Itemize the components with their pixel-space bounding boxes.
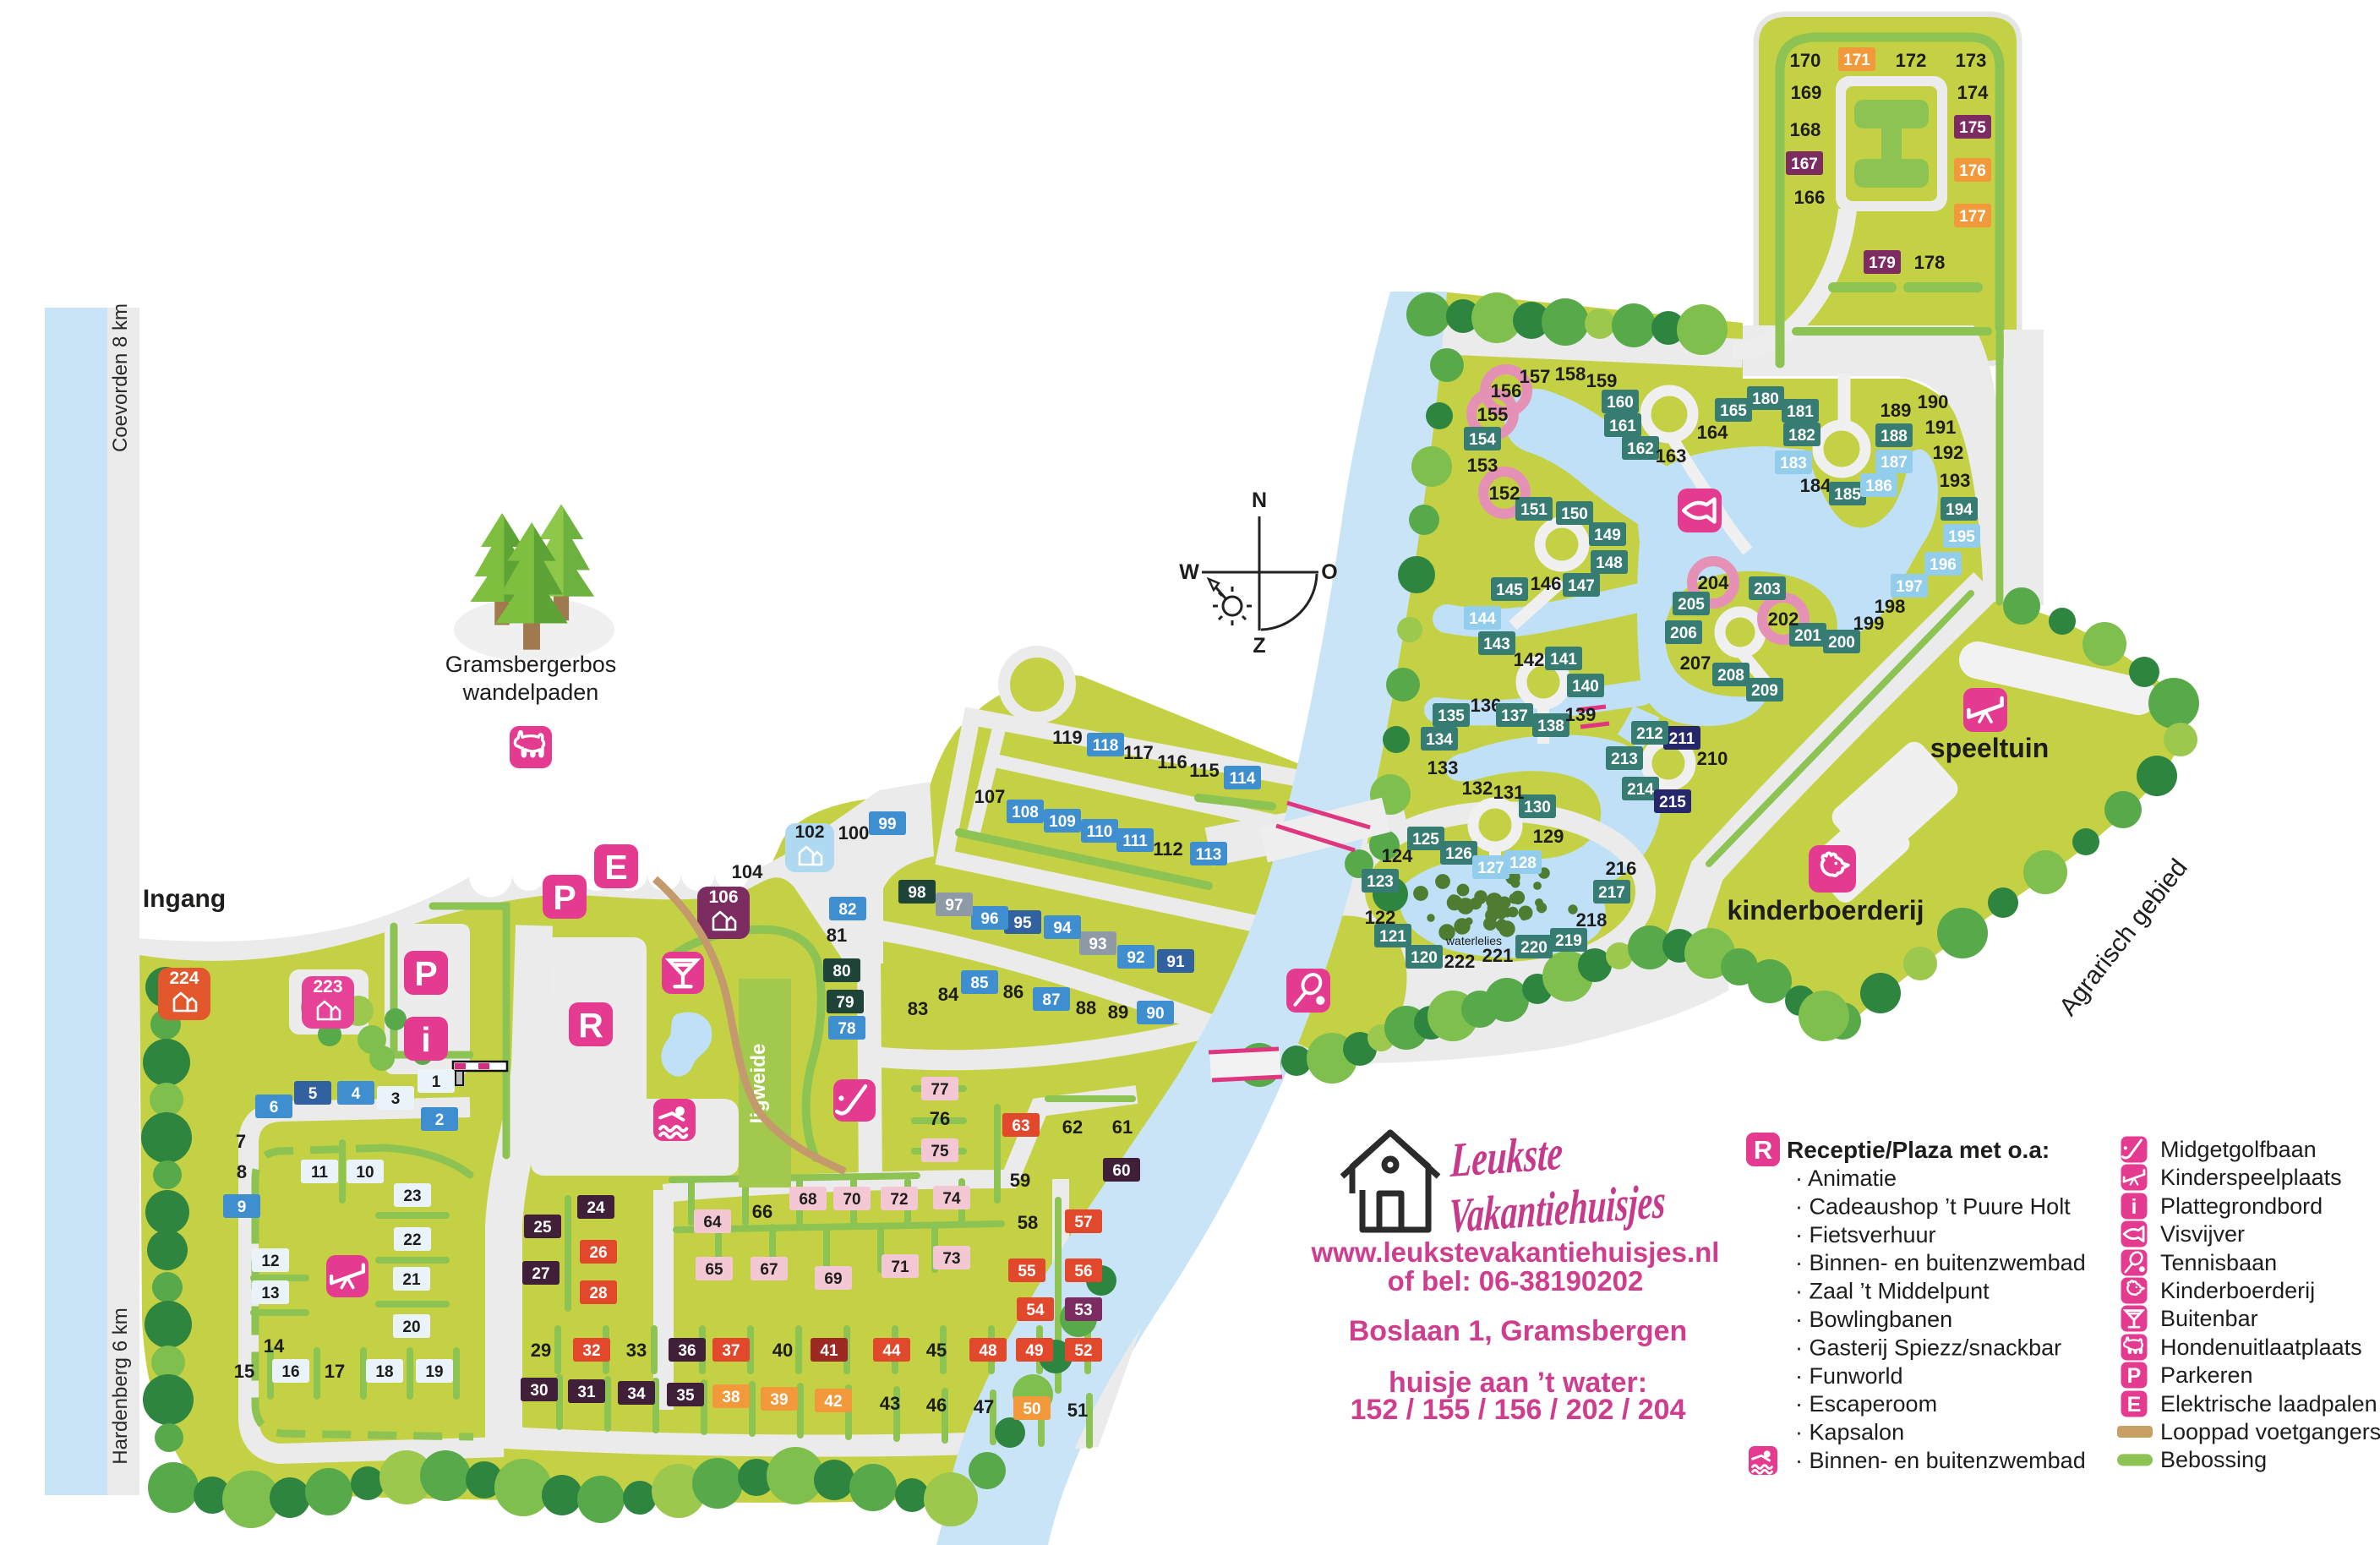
svg-text:139: 139 bbox=[1565, 704, 1597, 725]
svg-text:of bel: 06-38190202: of bel: 06-38190202 bbox=[1388, 1265, 1644, 1297]
svg-text:61: 61 bbox=[1112, 1116, 1133, 1138]
svg-text:146: 146 bbox=[1531, 573, 1562, 594]
svg-text:33: 33 bbox=[626, 1340, 647, 1361]
svg-text:150: 150 bbox=[1561, 505, 1588, 523]
svg-text:85: 85 bbox=[970, 974, 989, 992]
svg-text:116: 116 bbox=[1157, 751, 1187, 772]
svg-text:202: 202 bbox=[1768, 609, 1799, 630]
svg-text:41: 41 bbox=[820, 1342, 838, 1360]
svg-text:169: 169 bbox=[1791, 82, 1822, 103]
svg-text:123: 123 bbox=[1367, 873, 1394, 891]
svg-text:100: 100 bbox=[838, 822, 870, 843]
svg-text:207: 207 bbox=[1680, 652, 1711, 674]
svg-text:152 / 155 / 156 / 202 / 204: 152 / 155 / 156 / 202 / 204 bbox=[1351, 1394, 1686, 1426]
svg-text:74: 74 bbox=[942, 1190, 961, 1208]
svg-text:53: 53 bbox=[1074, 1302, 1092, 1319]
svg-text:205: 205 bbox=[1678, 596, 1705, 614]
svg-text:Kinderspeelplaats: Kinderspeelplaats bbox=[2160, 1165, 2342, 1190]
svg-text:· Zaal ’t Middelpunt: · Zaal ’t Middelpunt bbox=[1795, 1279, 1990, 1304]
svg-text:117: 117 bbox=[1123, 742, 1154, 763]
svg-text:Looppad voetgangers: Looppad voetgangers bbox=[2160, 1419, 2380, 1444]
svg-text:216: 216 bbox=[1606, 858, 1637, 879]
svg-text:215: 215 bbox=[1659, 794, 1686, 811]
svg-text:209: 209 bbox=[1751, 682, 1778, 700]
svg-text:191: 191 bbox=[1925, 417, 1957, 438]
svg-text:8: 8 bbox=[237, 1161, 247, 1182]
svg-text:214: 214 bbox=[1627, 781, 1654, 799]
svg-text:63: 63 bbox=[1012, 1117, 1029, 1135]
svg-text:· Bowlingbanen: · Bowlingbanen bbox=[1795, 1307, 1952, 1332]
svg-text:6: 6 bbox=[270, 1099, 279, 1116]
svg-text:4: 4 bbox=[352, 1085, 361, 1103]
svg-text:185: 185 bbox=[1834, 486, 1861, 504]
svg-text:177: 177 bbox=[1959, 208, 1986, 226]
svg-text:79: 79 bbox=[836, 994, 854, 1012]
svg-text:137: 137 bbox=[1501, 707, 1528, 725]
svg-text:66: 66 bbox=[752, 1201, 772, 1222]
svg-text:76: 76 bbox=[930, 1108, 950, 1129]
svg-text:95: 95 bbox=[1013, 914, 1032, 932]
svg-text:i: i bbox=[2132, 1195, 2137, 1219]
svg-text:83: 83 bbox=[908, 998, 928, 1019]
svg-text:speeltuin: speeltuin bbox=[1930, 733, 2049, 763]
svg-text:11: 11 bbox=[311, 1164, 329, 1182]
svg-text:47: 47 bbox=[974, 1396, 994, 1417]
svg-text:28: 28 bbox=[589, 1285, 607, 1302]
svg-text:· Animatie: · Animatie bbox=[1795, 1166, 1897, 1191]
svg-text:161: 161 bbox=[1609, 418, 1636, 435]
svg-text:119: 119 bbox=[1052, 727, 1083, 748]
svg-text:126: 126 bbox=[1445, 845, 1472, 863]
svg-text:57: 57 bbox=[1074, 1214, 1092, 1231]
svg-text:222: 222 bbox=[1444, 951, 1476, 972]
svg-text:67: 67 bbox=[760, 1261, 778, 1279]
svg-text:217: 217 bbox=[1598, 884, 1625, 902]
svg-text:18: 18 bbox=[375, 1363, 393, 1381]
svg-text:152: 152 bbox=[1489, 483, 1520, 504]
svg-text:19: 19 bbox=[425, 1363, 443, 1381]
svg-text:112: 112 bbox=[1153, 838, 1183, 860]
svg-text:· Gasterij Spiezz/snackbar: · Gasterij Spiezz/snackbar bbox=[1795, 1335, 2061, 1360]
svg-text:200: 200 bbox=[1828, 634, 1855, 652]
svg-text:224: 224 bbox=[169, 969, 199, 988]
svg-text:87: 87 bbox=[1042, 991, 1060, 1009]
svg-text:Midgetgolfbaan: Midgetgolfbaan bbox=[2160, 1137, 2317, 1162]
svg-text:45: 45 bbox=[926, 1340, 947, 1361]
svg-text:62: 62 bbox=[1062, 1116, 1083, 1138]
svg-text:81: 81 bbox=[827, 925, 847, 946]
svg-text:96: 96 bbox=[980, 910, 998, 928]
svg-text:98: 98 bbox=[908, 884, 925, 902]
svg-text:113: 113 bbox=[1196, 846, 1222, 864]
svg-text:17: 17 bbox=[325, 1361, 345, 1382]
svg-text:220: 220 bbox=[1520, 939, 1548, 957]
svg-text:77: 77 bbox=[931, 1081, 948, 1099]
svg-text:68: 68 bbox=[799, 1191, 816, 1209]
svg-text:153: 153 bbox=[1467, 455, 1498, 476]
svg-text:37: 37 bbox=[722, 1342, 740, 1360]
svg-text:155: 155 bbox=[1477, 404, 1509, 425]
svg-text:3: 3 bbox=[391, 1090, 401, 1108]
svg-text:110: 110 bbox=[1087, 823, 1113, 841]
svg-text:9: 9 bbox=[237, 1198, 247, 1216]
svg-text:172: 172 bbox=[1896, 50, 1927, 71]
svg-text:189: 189 bbox=[1881, 400, 1912, 421]
svg-text:192: 192 bbox=[1933, 442, 1964, 463]
svg-text:163: 163 bbox=[1656, 445, 1687, 467]
svg-text:213: 213 bbox=[1611, 751, 1638, 768]
svg-text:23: 23 bbox=[403, 1187, 421, 1205]
svg-text:· Funworld: · Funworld bbox=[1795, 1363, 1903, 1389]
svg-text:Ingang: Ingang bbox=[143, 885, 226, 913]
svg-text:35: 35 bbox=[676, 1387, 695, 1405]
svg-text:13: 13 bbox=[261, 1285, 279, 1302]
svg-text:144: 144 bbox=[1469, 610, 1496, 628]
svg-text:22: 22 bbox=[403, 1231, 421, 1249]
svg-text:52: 52 bbox=[1074, 1342, 1092, 1360]
svg-text:196: 196 bbox=[1930, 556, 1957, 574]
svg-text:· Escaperoom: · Escaperoom bbox=[1795, 1391, 1937, 1417]
svg-text:P: P bbox=[414, 954, 437, 993]
svg-text:111: 111 bbox=[1122, 833, 1148, 850]
svg-text:121: 121 bbox=[1379, 928, 1406, 946]
svg-text:Receptie/Plaza met o.a:: Receptie/Plaza met o.a: bbox=[1787, 1137, 2050, 1163]
svg-text:Gramsbergerbos: Gramsbergerbos bbox=[445, 652, 617, 677]
svg-text:93: 93 bbox=[1089, 936, 1106, 953]
svg-text:39: 39 bbox=[770, 1391, 788, 1409]
svg-text:R: R bbox=[1754, 1135, 1772, 1165]
svg-text:38: 38 bbox=[722, 1389, 740, 1406]
svg-text:223: 223 bbox=[313, 977, 342, 996]
svg-text:88: 88 bbox=[1076, 997, 1096, 1018]
svg-text:· Fietsverhuur: · Fietsverhuur bbox=[1795, 1222, 1936, 1247]
svg-text:· Binnen- en buitenzwembad: · Binnen- en buitenzwembad bbox=[1795, 1250, 2086, 1275]
svg-text:20: 20 bbox=[402, 1318, 420, 1336]
svg-text:31: 31 bbox=[577, 1384, 596, 1401]
svg-text:Parkeren: Parkeren bbox=[2160, 1362, 2253, 1388]
svg-text:i: i bbox=[421, 1020, 430, 1059]
svg-text:179: 179 bbox=[1869, 254, 1896, 272]
svg-text:193: 193 bbox=[1940, 470, 1971, 491]
svg-text:118: 118 bbox=[1093, 737, 1119, 755]
svg-text:203: 203 bbox=[1754, 581, 1781, 598]
svg-text:158: 158 bbox=[1555, 363, 1586, 385]
svg-text:48: 48 bbox=[979, 1342, 996, 1360]
svg-text:109: 109 bbox=[1049, 813, 1076, 831]
svg-text:218: 218 bbox=[1576, 909, 1608, 931]
svg-text:Bebossing: Bebossing bbox=[2160, 1447, 2267, 1472]
svg-text:90: 90 bbox=[1146, 1005, 1164, 1023]
svg-text:140: 140 bbox=[1572, 678, 1599, 696]
svg-text:Plattegrondbord: Plattegrondbord bbox=[2160, 1193, 2323, 1219]
svg-text:32: 32 bbox=[582, 1342, 600, 1360]
svg-text:102: 102 bbox=[794, 822, 824, 842]
svg-text:14: 14 bbox=[264, 1335, 285, 1357]
svg-text:16: 16 bbox=[281, 1363, 299, 1381]
svg-text:27: 27 bbox=[532, 1265, 549, 1283]
svg-text:181: 181 bbox=[1787, 403, 1814, 421]
svg-text:1: 1 bbox=[432, 1073, 441, 1091]
svg-text:64: 64 bbox=[703, 1214, 722, 1231]
svg-text:Z: Z bbox=[1253, 634, 1265, 658]
svg-text:69: 69 bbox=[824, 1270, 842, 1288]
svg-text:www.leukstevakantiehuisjes.nl: www.leukstevakantiehuisjes.nl bbox=[1311, 1237, 1720, 1268]
svg-text:Elektrische laadpalen: Elektrische laadpalen bbox=[2160, 1391, 2377, 1417]
svg-text:80: 80 bbox=[832, 963, 850, 980]
svg-text:210: 210 bbox=[1697, 748, 1728, 769]
svg-text:70: 70 bbox=[843, 1191, 860, 1209]
svg-text:Kinderboerderij: Kinderboerderij bbox=[2160, 1278, 2315, 1303]
svg-text:130: 130 bbox=[1524, 799, 1551, 816]
svg-text:120: 120 bbox=[1411, 949, 1438, 967]
svg-text:91: 91 bbox=[1166, 953, 1185, 971]
svg-text:219: 219 bbox=[1555, 932, 1582, 950]
svg-text:212: 212 bbox=[1636, 725, 1663, 743]
svg-text:Boslaan 1, Gramsbergen: Boslaan 1, Gramsbergen bbox=[1349, 1315, 1688, 1347]
svg-text:178: 178 bbox=[1914, 252, 1946, 273]
svg-text:195: 195 bbox=[1948, 528, 1975, 546]
svg-text:134: 134 bbox=[1426, 731, 1453, 749]
svg-text:204: 204 bbox=[1698, 572, 1729, 593]
svg-text:174: 174 bbox=[1957, 82, 1989, 103]
svg-text:89: 89 bbox=[1108, 1002, 1128, 1023]
svg-text:15: 15 bbox=[234, 1361, 254, 1382]
svg-text:142: 142 bbox=[1514, 649, 1545, 670]
svg-text:183: 183 bbox=[1780, 455, 1807, 472]
svg-text:O: O bbox=[1321, 560, 1337, 584]
svg-text:waterlelies: waterlelies bbox=[1445, 934, 1502, 947]
svg-text:Agrarisch gebied: Agrarisch gebied bbox=[2054, 854, 2193, 1021]
svg-text:115: 115 bbox=[1189, 760, 1220, 781]
svg-text:186: 186 bbox=[1865, 478, 1892, 495]
svg-text:Visvijver: Visvijver bbox=[2160, 1221, 2245, 1247]
svg-text:107: 107 bbox=[974, 786, 1006, 807]
svg-text:135: 135 bbox=[1438, 707, 1465, 725]
svg-text:· Kapsalon: · Kapsalon bbox=[1795, 1420, 1904, 1445]
svg-text:12: 12 bbox=[261, 1253, 279, 1270]
svg-text:55: 55 bbox=[1018, 1263, 1036, 1280]
svg-text:132: 132 bbox=[1462, 778, 1493, 799]
svg-text:59: 59 bbox=[1010, 1170, 1030, 1191]
svg-text:94: 94 bbox=[1053, 920, 1072, 937]
svg-text:149: 149 bbox=[1594, 527, 1621, 544]
svg-text:173: 173 bbox=[1956, 50, 1987, 71]
svg-text:162: 162 bbox=[1627, 440, 1654, 458]
svg-text:· Binnen- en buitenzwembad: · Binnen- en buitenzwembad bbox=[1795, 1448, 2086, 1473]
svg-text:159: 159 bbox=[1586, 370, 1618, 391]
svg-text:201: 201 bbox=[1794, 627, 1821, 645]
svg-text:133: 133 bbox=[1427, 757, 1459, 778]
svg-text:138: 138 bbox=[1537, 718, 1564, 735]
svg-text:25: 25 bbox=[533, 1219, 552, 1237]
svg-text:Hondenuitlaatplaats: Hondenuitlaatplaats bbox=[2160, 1335, 2362, 1360]
svg-text:206: 206 bbox=[1670, 625, 1697, 642]
svg-text:36: 36 bbox=[678, 1342, 696, 1360]
svg-text:78: 78 bbox=[838, 1020, 855, 1038]
svg-text:26: 26 bbox=[589, 1244, 607, 1262]
svg-text:W: W bbox=[1179, 560, 1199, 584]
svg-text:145: 145 bbox=[1496, 581, 1523, 599]
svg-text:151: 151 bbox=[1520, 501, 1548, 519]
svg-text:129: 129 bbox=[1533, 826, 1564, 847]
svg-text:N: N bbox=[1252, 489, 1267, 512]
svg-text:50: 50 bbox=[1023, 1400, 1040, 1418]
svg-text:R: R bbox=[578, 1006, 603, 1045]
svg-text:60: 60 bbox=[1112, 1162, 1130, 1180]
svg-text:84: 84 bbox=[938, 984, 959, 1005]
svg-text:190: 190 bbox=[1918, 391, 1949, 412]
svg-text:143: 143 bbox=[1483, 636, 1510, 653]
svg-text:208: 208 bbox=[1717, 667, 1744, 685]
svg-text:104: 104 bbox=[732, 861, 763, 882]
svg-text:wandelpaden: wandelpaden bbox=[462, 680, 599, 705]
svg-text:128: 128 bbox=[1509, 854, 1537, 872]
svg-text:73: 73 bbox=[942, 1250, 960, 1268]
svg-text:160: 160 bbox=[1607, 394, 1634, 412]
svg-text:99: 99 bbox=[878, 816, 896, 833]
svg-text:71: 71 bbox=[891, 1258, 909, 1276]
svg-text:122: 122 bbox=[1365, 907, 1396, 928]
svg-text:P: P bbox=[2127, 1364, 2142, 1388]
svg-text:86: 86 bbox=[1003, 981, 1024, 1002]
svg-text:165: 165 bbox=[1720, 402, 1747, 420]
svg-text:188: 188 bbox=[1881, 428, 1908, 445]
svg-text:197: 197 bbox=[1896, 578, 1923, 596]
svg-text:180: 180 bbox=[1752, 390, 1779, 408]
svg-text:194: 194 bbox=[1946, 501, 1973, 519]
svg-text:82: 82 bbox=[838, 901, 856, 919]
svg-text:187: 187 bbox=[1881, 454, 1908, 472]
svg-text:164: 164 bbox=[1697, 422, 1728, 443]
svg-text:43: 43 bbox=[880, 1393, 900, 1414]
svg-text:58: 58 bbox=[1018, 1212, 1038, 1233]
svg-text:114: 114 bbox=[1230, 770, 1256, 788]
svg-text:75: 75 bbox=[931, 1143, 949, 1160]
svg-text:127: 127 bbox=[1477, 860, 1504, 877]
svg-text:157: 157 bbox=[1520, 366, 1551, 387]
svg-text:141: 141 bbox=[1550, 651, 1577, 669]
svg-text:148: 148 bbox=[1596, 554, 1623, 572]
svg-text:Hardenberg 6 km: Hardenberg 6 km bbox=[109, 1308, 132, 1464]
svg-text:21: 21 bbox=[402, 1271, 421, 1289]
svg-text:131: 131 bbox=[1493, 782, 1525, 803]
svg-text:156: 156 bbox=[1491, 380, 1522, 401]
svg-text:167: 167 bbox=[1791, 156, 1818, 173]
svg-text:106: 106 bbox=[708, 887, 738, 907]
svg-text:E: E bbox=[2127, 1393, 2142, 1417]
svg-text:42: 42 bbox=[824, 1393, 842, 1411]
svg-text:176: 176 bbox=[1959, 162, 1986, 180]
svg-text:56: 56 bbox=[1074, 1263, 1092, 1280]
svg-text:kinderboerderij: kinderboerderij bbox=[1728, 895, 1924, 925]
svg-text:Tennisbaan: Tennisbaan bbox=[2160, 1250, 2277, 1275]
svg-text:92: 92 bbox=[1127, 949, 1144, 967]
svg-text:166: 166 bbox=[1794, 187, 1826, 208]
svg-text:108: 108 bbox=[1012, 804, 1039, 822]
svg-text:168: 168 bbox=[1790, 119, 1821, 140]
svg-text:182: 182 bbox=[1788, 427, 1815, 445]
svg-text:125: 125 bbox=[1412, 831, 1439, 849]
svg-text:40: 40 bbox=[772, 1340, 793, 1361]
svg-text:97: 97 bbox=[945, 897, 963, 914]
svg-text:170: 170 bbox=[1790, 50, 1821, 71]
svg-text:221: 221 bbox=[1482, 945, 1514, 966]
svg-text:29: 29 bbox=[531, 1340, 551, 1361]
svg-text:P: P bbox=[553, 878, 576, 917]
svg-text:49: 49 bbox=[1025, 1342, 1043, 1360]
svg-text:34: 34 bbox=[627, 1385, 646, 1403]
svg-text:30: 30 bbox=[530, 1382, 548, 1400]
svg-text:54: 54 bbox=[1026, 1302, 1045, 1319]
svg-text:72: 72 bbox=[890, 1191, 908, 1209]
svg-text:24: 24 bbox=[587, 1199, 605, 1217]
svg-text:7: 7 bbox=[236, 1131, 246, 1152]
svg-text:51: 51 bbox=[1067, 1400, 1088, 1421]
svg-text:211: 211 bbox=[1669, 730, 1695, 748]
svg-text:E: E bbox=[604, 848, 627, 887]
svg-text:10: 10 bbox=[356, 1164, 374, 1182]
svg-text:154: 154 bbox=[1469, 431, 1496, 449]
svg-text:Coevorden 8 km: Coevorden 8 km bbox=[109, 303, 132, 452]
svg-text:147: 147 bbox=[1568, 577, 1595, 595]
svg-text:44: 44 bbox=[882, 1342, 901, 1360]
svg-text:184: 184 bbox=[1800, 475, 1831, 496]
svg-text:· Cadeaushop ’t Puure Holt: · Cadeaushop ’t Puure Holt bbox=[1795, 1193, 2071, 1219]
svg-text:Buitenbar: Buitenbar bbox=[2160, 1306, 2258, 1331]
svg-text:171: 171 bbox=[1843, 52, 1870, 69]
svg-text:46: 46 bbox=[926, 1395, 947, 1416]
svg-text:5: 5 bbox=[308, 1085, 318, 1103]
svg-text:65: 65 bbox=[705, 1261, 723, 1279]
svg-text:Leukste: Leukste bbox=[1449, 1125, 1564, 1187]
svg-text:2: 2 bbox=[435, 1111, 445, 1129]
svg-text:175: 175 bbox=[1959, 119, 1986, 137]
